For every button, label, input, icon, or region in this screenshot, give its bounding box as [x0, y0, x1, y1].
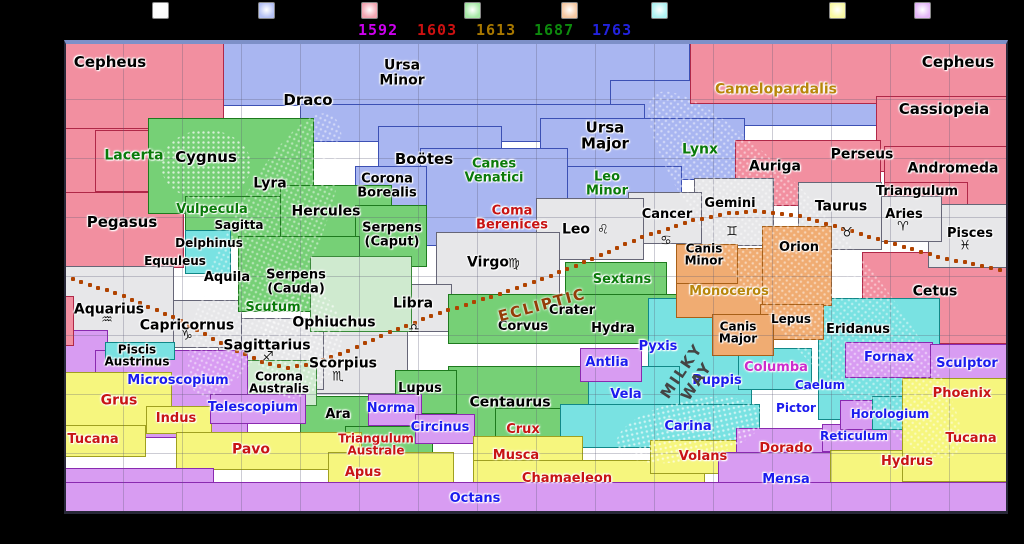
ecliptic-dot [146, 305, 150, 309]
constellation-label-lepus: Lepus [771, 313, 811, 325]
ecliptic-dot [421, 317, 425, 321]
ecliptic-dot [455, 306, 459, 310]
constellation-label-musca: Musca [493, 449, 539, 463]
constellation-label-cetus: Cetus [913, 285, 958, 300]
constellation-label-pavo: Pavo [232, 443, 270, 458]
constellation-label-gemini: Gemini [704, 197, 755, 211]
constellation-label-canes: Canes Venatici [464, 157, 523, 184]
ecliptic-dot [379, 334, 383, 338]
legend-swatch-heavenly-waters-family [651, 2, 668, 19]
constellation-label-leo: Leo [562, 223, 590, 238]
legend-year-1592: 1592 [358, 21, 414, 39]
legend-swatch-hercules-family [464, 2, 481, 19]
ecliptic-dot [489, 295, 493, 299]
ecliptic-dot [954, 259, 958, 263]
ecliptic-dot [780, 212, 784, 216]
legend-year-1687: 1687 [534, 21, 590, 39]
constellation-label-hydra: Hydra [591, 322, 635, 336]
zodiac-symbol: ♌ [597, 223, 609, 238]
constellation-label-crux: Crux [506, 423, 540, 437]
constellation-label-perseus: Perseus [831, 148, 894, 163]
constellation-label-indus: Indus [156, 412, 196, 426]
constellation-chart-image: 15921603161316871763 ECLIPTIC MILKY WAY … [0, 0, 1024, 544]
constellation-label-horologium: Horologium [851, 408, 930, 420]
constellation-label-libra: Libra [393, 297, 433, 312]
ecliptic-dot [515, 286, 519, 290]
constellation-label-dorado: Dorado [759, 442, 812, 456]
ecliptic-dot [893, 242, 897, 246]
ecliptic-dot [666, 227, 670, 231]
ecliptic-dot [163, 312, 167, 316]
ecliptic-dot [989, 266, 993, 270]
constellation-label-cancer: Cancer [642, 208, 693, 222]
constellation-label-vulpecula: Vulpecula [176, 203, 248, 217]
ecliptic-dot [363, 341, 367, 345]
zodiac-symbol: ♐ [262, 350, 274, 365]
constellation-label-apus: Apus [345, 466, 381, 480]
ecliptic-dot [936, 255, 940, 259]
constellation-label-ursa: Ursa Major [581, 120, 629, 151]
constellation-label-delphinus: Delphinus [175, 237, 243, 249]
constellation-label-eridanus: Eridanus [826, 323, 890, 337]
ecliptic-dot [371, 338, 375, 342]
constellation-label-serpens: Serpens (Caput) [362, 221, 422, 248]
ecliptic-dot [498, 292, 502, 296]
ecliptic-dot [867, 235, 871, 239]
ecliptic-dot [155, 308, 159, 312]
constellation-label-sextans: Sextans [593, 273, 652, 287]
ecliptic-dot [88, 283, 92, 287]
constellation-label-vela: Vela [610, 388, 641, 402]
constellation-label-octans: Octans [450, 492, 501, 506]
constellation-label-triangulum: Triangulum [876, 185, 958, 199]
constellation-label-lacerta: Lacerta [104, 149, 163, 164]
ecliptic-dot [295, 364, 299, 368]
constellation-label-camelopardalis: Camelopardalis [715, 83, 837, 98]
ecliptic-dot [980, 264, 984, 268]
ecliptic-dot [859, 232, 863, 236]
constellation-label-ursa: Ursa Minor [379, 58, 424, 87]
constellation-label-circinus: Circinus [411, 421, 470, 435]
ecliptic-dot [565, 267, 569, 271]
region-orion [762, 226, 832, 306]
zodiac-symbol: ♍ [508, 257, 520, 272]
ecliptic-dot [557, 270, 561, 274]
ecliptic-dot [464, 303, 468, 307]
ecliptic-dot [919, 250, 923, 254]
constellation-label-scutum: Scutum [245, 301, 300, 315]
constellation-label-lupus: Lupus [398, 382, 442, 396]
constellation-label-tucana: Tucana [67, 433, 118, 447]
zodiac-symbol: ♓ [959, 239, 971, 254]
constellation-label-chamaeleon: Chamaeleon [522, 472, 612, 486]
constellation-label-sagitta: Sagitta [214, 219, 263, 231]
ecliptic-dot [219, 341, 223, 345]
ecliptic-dot [789, 213, 793, 217]
sky-map: ECLIPTIC MILKY WAY CepheusUrsa MinorDrac… [64, 40, 1008, 514]
constellation-label-pictor: Pictor [776, 402, 816, 414]
ecliptic-dot [674, 224, 678, 228]
ecliptic-dot [700, 217, 704, 221]
zodiac-symbol: ♒ [101, 313, 113, 328]
ecliptic-dot [346, 349, 350, 353]
ecliptic-dot [532, 280, 536, 284]
ecliptic-dot [438, 311, 442, 315]
ecliptic-dot [64, 274, 66, 278]
ecliptic-dot [304, 363, 308, 367]
constellation-label-serpens: Serpens (Cauda) [266, 268, 326, 295]
ecliptic-dot [815, 219, 819, 223]
constellation-label-hydrus: Hydrus [881, 455, 933, 469]
ecliptic-dot [79, 280, 83, 284]
ecliptic-dot [945, 257, 949, 261]
constellation-label-taurus: Taurus [815, 200, 867, 215]
ecliptic-dot [607, 250, 611, 254]
constellation-label-aquila: Aquila [204, 271, 250, 285]
zodiac-symbol: ♈ [897, 220, 909, 235]
ecliptic-dot [113, 291, 117, 295]
constellation-label-cassiopeia: Cassiopeia [899, 102, 990, 118]
ecliptic-dot [876, 237, 880, 241]
ecliptic-dot [998, 268, 1002, 272]
constellation-label-triangulum: Triangulum Australe [338, 433, 414, 458]
region-perseus [64, 296, 74, 346]
legend-swatch-zodiac-family [152, 2, 169, 19]
legend-year-1603: 1603 [417, 21, 473, 39]
constellation-label-hercules: Hercules [291, 205, 360, 220]
ecliptic-dot [252, 356, 256, 360]
ecliptic-dot [122, 294, 126, 298]
ecliptic-dot [771, 211, 775, 215]
constellation-label-norma: Norma [367, 402, 416, 416]
ecliptic-dot [833, 224, 837, 228]
ecliptic-dot [798, 214, 802, 218]
constellation-label-caelum: Caelum [795, 379, 845, 391]
ecliptic-dot [709, 215, 713, 219]
constellation-label-corona: Corona Australis [249, 371, 309, 396]
ecliptic-dot [640, 235, 644, 239]
ecliptic-dot [632, 239, 636, 243]
ecliptic-dot [396, 327, 400, 331]
constellation-label-cepheus: Cepheus [922, 55, 994, 71]
constellation-label-lynx: Lynx [682, 143, 718, 158]
zodiac-symbol: ♉ [841, 226, 853, 241]
legend-swatch-ursa-major-family [258, 2, 275, 19]
constellation-label-phoenix: Phoenix [933, 387, 992, 401]
zodiac-symbol: ♊ [726, 225, 738, 240]
constellation-label-orion: Orion [779, 241, 819, 255]
constellation-label-coma: Coma Berenices [476, 204, 548, 231]
constellation-label-canis: Canis Minor [685, 243, 724, 268]
ecliptic-dot [96, 286, 100, 290]
constellation-label-leo: Leo Minor [586, 170, 628, 197]
ecliptic-dot [574, 264, 578, 268]
constellation-label-columba: Columba [744, 361, 808, 375]
constellation-label-volans: Volans [679, 450, 728, 464]
zodiac-symbol: ♋ [660, 234, 672, 249]
ecliptic-dot [824, 222, 828, 226]
ecliptic-dot [277, 364, 281, 368]
ecliptic-dot [928, 252, 932, 256]
ecliptic-dot [599, 253, 603, 257]
legend-swatch-lacaille-family [914, 2, 931, 19]
zodiac-symbol: ♏ [332, 370, 344, 385]
legend-swatch-orion-family [561, 2, 578, 19]
constellation-label-grus: Grus [101, 394, 138, 409]
ecliptic-dot [481, 297, 485, 301]
legend-swatch-bayer-family [829, 2, 846, 19]
zodiac-symbol: ♑ [181, 329, 193, 344]
constellation-label-sculptor: Sculptor [936, 357, 998, 371]
ecliptic-dot [105, 288, 109, 292]
ecliptic-dot [355, 345, 359, 349]
ecliptic-dot [762, 210, 766, 214]
ecliptic-dot [718, 213, 722, 217]
constellation-label-lyra: Lyra [253, 177, 286, 192]
constellation-label-fornax: Fornax [864, 351, 914, 365]
ecliptic-dot [590, 257, 594, 261]
constellation-label-pegasus: Pegasus [87, 215, 158, 231]
constellation-label-cygnus: Cygnus [175, 150, 237, 166]
ecliptic-dot [910, 247, 914, 251]
ecliptic-dot [884, 240, 888, 244]
constellation-label-tucana: Tucana [945, 432, 996, 446]
constellation-label-monoceros: Monoceros [689, 285, 769, 299]
ecliptic-dot [807, 217, 811, 221]
constellation-label-reticulum: Reticulum [820, 430, 888, 442]
constellation-label-ara: Ara [325, 408, 350, 422]
ecliptic-dot [540, 277, 544, 281]
ecliptic-dot [523, 283, 527, 287]
constellation-label-andromeda: Andromeda [908, 162, 999, 177]
constellation-label-ophiuchus: Ophiuchus [292, 316, 375, 331]
legend-swatch-perseus-family [361, 2, 378, 19]
ecliptic-dot [902, 245, 906, 249]
ecliptic-dot [615, 246, 619, 250]
ecliptic-dot [211, 337, 215, 341]
ecliptic-dot [549, 274, 553, 278]
zodiac-symbol: ♎ [408, 322, 420, 337]
constellation-label-cepheus: Cepheus [74, 55, 146, 71]
legend-year-1613: 1613 [476, 21, 532, 39]
constellation-label-microscopium: Microscopium [127, 374, 228, 388]
constellation-label-draco: Draco [283, 93, 332, 109]
ecliptic-dot [963, 260, 967, 264]
constellation-label-pyxis: Pyxis [639, 340, 678, 354]
ecliptic-dot [506, 289, 510, 293]
legend-year-1763: 1763 [592, 21, 648, 39]
constellation-label-virgo: Virgo [467, 256, 509, 271]
ecliptic-dot [582, 260, 586, 264]
ecliptic-dot [472, 300, 476, 304]
constellation-label-piscis: Piscis Austrinus [105, 344, 170, 369]
constellation-label-telescopium: Telescopium [208, 401, 298, 415]
constellation-label-auriga: Auriga [749, 160, 801, 175]
constellation-label-bo-tes: Boötes [395, 152, 453, 168]
ecliptic-dot [727, 211, 731, 215]
region-lacaille [64, 482, 1008, 512]
ecliptic-dot [649, 232, 653, 236]
constellation-label-corona: Corona Borealis [357, 172, 417, 199]
constellation-label-mensa: Mensa [762, 473, 810, 487]
ecliptic-dot [71, 277, 75, 281]
constellation-label-equuleus: Equuleus [144, 255, 206, 267]
ecliptic-dot [388, 330, 392, 334]
constellation-label-centaurus: Centaurus [469, 396, 550, 411]
constellation-label-antlia: Antlia [585, 356, 628, 370]
